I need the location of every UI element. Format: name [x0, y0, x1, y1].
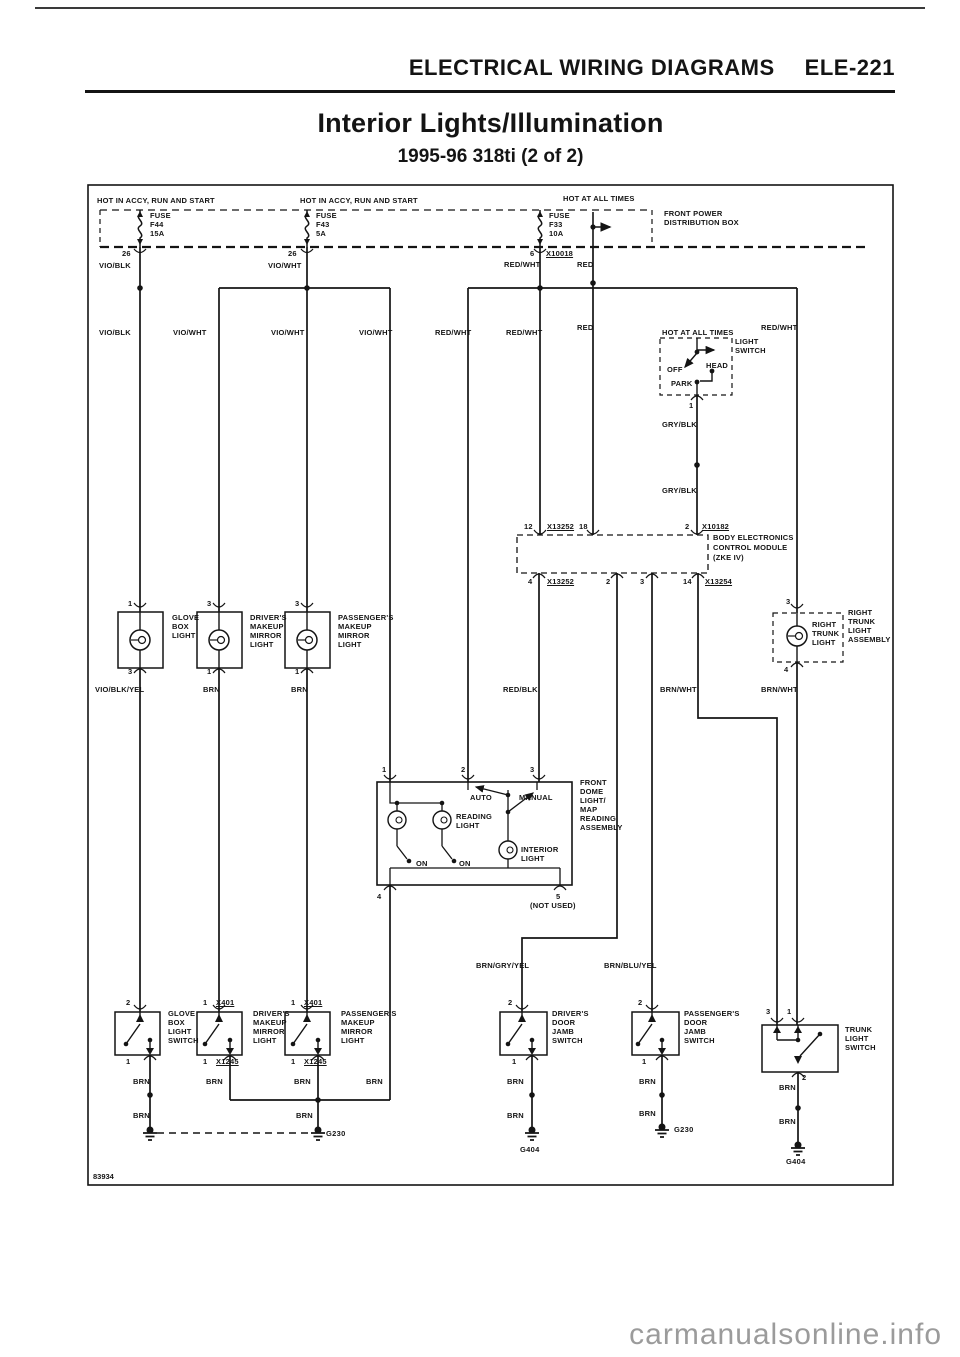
component-label: ASSEMBLY [580, 824, 623, 833]
pin-brackets [134, 249, 804, 1077]
pin-label: 2 [638, 999, 642, 1008]
passengers-makeup-mirror-light-bulb [285, 612, 330, 668]
connector-label: X13252 [547, 523, 574, 532]
pin-label: 14 [683, 578, 692, 587]
pin-label: 3 [295, 600, 299, 609]
wire-label: BRN [294, 1078, 311, 1087]
pin-label: 1 [295, 668, 299, 677]
wire-label: BRN [206, 1078, 223, 1087]
wire-label: RED/WHT [435, 329, 471, 338]
note-label: ON [416, 860, 428, 869]
wire-label: GRY/BLK [662, 421, 697, 430]
component-label: LIGHT [521, 855, 545, 864]
pin-label: 1 [512, 1058, 516, 1067]
fuse-symbols [137, 210, 543, 247]
power-label: HOT IN ACCY, RUN AND START [97, 197, 215, 206]
watermark: carmanualsonline.info [629, 1318, 942, 1352]
pin-label: 12 [524, 523, 533, 532]
wire-label: RED [577, 261, 593, 270]
pin-label: 6 [530, 250, 534, 259]
connector-label: X401 [216, 999, 234, 1008]
drivers-makeup-mirror-light-bulb [197, 612, 242, 668]
wire-label: BRN/BLU/YEL [604, 962, 657, 971]
glove-box-light [118, 612, 163, 668]
component-label: LIGHT [250, 641, 274, 650]
connector-label: X401 [304, 999, 322, 1008]
distribution-feed-arrow [590, 212, 610, 247]
component-label: LIGHT [172, 632, 196, 641]
component-label: CONTROL MODULE [713, 544, 787, 553]
component-label: LIGHT [253, 1037, 277, 1046]
wire-label: BRN [779, 1084, 796, 1093]
pin-label: 2 [685, 523, 689, 532]
wire-label: RED/WHT [504, 261, 540, 270]
wire-label: BRN [296, 1112, 313, 1121]
passengers-makeup-mirror-light-switch [285, 1012, 330, 1055]
ground-label: G230 [674, 1126, 694, 1135]
wire-label: BRN/GRY/YEL [476, 962, 529, 971]
note-label: AUTO [470, 794, 492, 803]
note-label: MANUAL [519, 794, 553, 803]
pin-label: 26 [288, 250, 297, 259]
component-label: SWITCH [735, 347, 766, 356]
note-label: PARK [671, 380, 693, 389]
ground-g230-passenger [655, 1124, 669, 1137]
fuse-label: 15A [150, 230, 164, 239]
component-label: LIGHT [456, 822, 480, 831]
ground-label: G404 [786, 1158, 806, 1167]
wire-label: BRN [507, 1112, 524, 1121]
wire-label: BRN/WHT [761, 686, 798, 695]
wire-label: BRN [133, 1078, 150, 1087]
fuse-label: 10A [549, 230, 563, 239]
pin-label: 1 [382, 766, 386, 775]
wire-label: BRN [133, 1112, 150, 1121]
wire-label: BRN [639, 1078, 656, 1087]
note-label: ON [459, 860, 471, 869]
component-label: ASSEMBLY [848, 636, 891, 645]
pin-label: 2 [606, 578, 610, 587]
wire-label: VIO/BLK [99, 329, 131, 338]
wire-label: VIO/WHT [359, 329, 392, 338]
pin-label: 2 [802, 1074, 806, 1083]
component-label: SWITCH [845, 1044, 876, 1053]
wire-label: VIO/BLK [99, 262, 131, 271]
wire-label: BRN [779, 1118, 796, 1127]
pin-label: 1 [207, 668, 211, 677]
wire-label: BRN [639, 1110, 656, 1119]
component-label: SWITCH [168, 1037, 199, 1046]
pin-label: 3 [207, 600, 211, 609]
pin-label: 4 [377, 893, 381, 902]
component-label: LIGHT [341, 1037, 365, 1046]
wire-label: BRN [291, 686, 308, 695]
component-label: SWITCH [552, 1037, 583, 1046]
pin-label: 1 [128, 600, 132, 609]
pin-label: 1 [291, 1058, 295, 1067]
power-distribution-band [100, 210, 868, 247]
wire-label: BRN/WHT [660, 686, 697, 695]
connector-label: X13254 [705, 578, 732, 587]
figure-number: 83934 [93, 1172, 114, 1181]
pin-label: 1 [203, 999, 207, 1008]
drivers-makeup-mirror-light-switch [197, 1012, 242, 1055]
connector-label: X13252 [547, 578, 574, 587]
wire-label: GRY/BLK [662, 487, 697, 496]
ground-symbols [143, 1124, 805, 1155]
passengers-door-jamb-switch [632, 1012, 679, 1055]
pin-label: 26 [122, 250, 131, 259]
pin-label: 2 [126, 999, 130, 1008]
trunk-light-switch [762, 1025, 838, 1072]
note-label: OFF [667, 366, 683, 375]
pin-label: 3 [786, 598, 790, 607]
wire-label: RED/BLK [503, 686, 538, 695]
pin-label: 3 [640, 578, 644, 587]
ground-g404-trunk [791, 1142, 805, 1155]
connector-label: X1245 [216, 1058, 239, 1067]
pin-label: 1 [642, 1058, 646, 1067]
component-label: SWITCH [684, 1037, 715, 1046]
pin-label: 3 [766, 1008, 770, 1017]
note-label: (NOT USED) [530, 902, 576, 911]
wire-label: VIO/BLK/YEL [95, 686, 144, 695]
component-label: LIGHT [812, 639, 836, 648]
splice-dots [137, 280, 801, 1111]
wire-label: BRN [203, 686, 220, 695]
connector-label: X10018 [546, 250, 573, 259]
ground-g404-driver [525, 1127, 539, 1140]
pin-label: 3 [128, 668, 132, 677]
ground-g230-left [143, 1127, 157, 1140]
ground-label: G230 [326, 1130, 346, 1139]
pin-label: 2 [461, 766, 465, 775]
drivers-door-jamb-switch [500, 1012, 547, 1055]
power-label: HOT AT ALL TIMES [662, 329, 734, 338]
wire-label: VIO/WHT [268, 262, 301, 271]
ground-g230-left2 [311, 1127, 325, 1140]
pin-label: 3 [530, 766, 534, 775]
power-label: HOT AT ALL TIMES [563, 195, 635, 204]
component-label: DISTRIBUTION BOX [664, 219, 739, 228]
pin-label: 4 [784, 666, 788, 675]
pin-label: 2 [508, 999, 512, 1008]
pin-label: 1 [787, 1008, 791, 1017]
power-label: HOT IN ACCY, RUN AND START [300, 197, 418, 206]
note-label: HEAD [706, 362, 728, 371]
connector-label: X1245 [304, 1058, 327, 1067]
wires [140, 247, 798, 1142]
glove-box-light-switch [115, 1012, 160, 1055]
ground-label: G404 [520, 1146, 540, 1155]
wire-label: RED/WHT [506, 329, 542, 338]
body-electronics-control-module [517, 535, 708, 573]
component-label: (ZKE IV) [713, 554, 744, 563]
fuse-label: 5A [316, 230, 326, 239]
wire-label: VIO/WHT [173, 329, 206, 338]
wire-label: BRN [366, 1078, 383, 1087]
wire-label: VIO/WHT [271, 329, 304, 338]
wire-label: RED [577, 324, 593, 333]
wire-label: BRN [507, 1078, 524, 1087]
component-label: LIGHT [338, 641, 362, 650]
pin-label: 1 [689, 402, 693, 411]
pin-label: 18 [579, 523, 588, 532]
wire-label: RED/WHT [761, 324, 797, 333]
pin-label: 1 [291, 999, 295, 1008]
pin-label: 1 [126, 1058, 130, 1067]
pin-label: 4 [528, 578, 532, 587]
connector-label: X10182 [702, 523, 729, 532]
pin-label: 1 [203, 1058, 207, 1067]
component-label: BODY ELECTRONICS [713, 534, 794, 543]
